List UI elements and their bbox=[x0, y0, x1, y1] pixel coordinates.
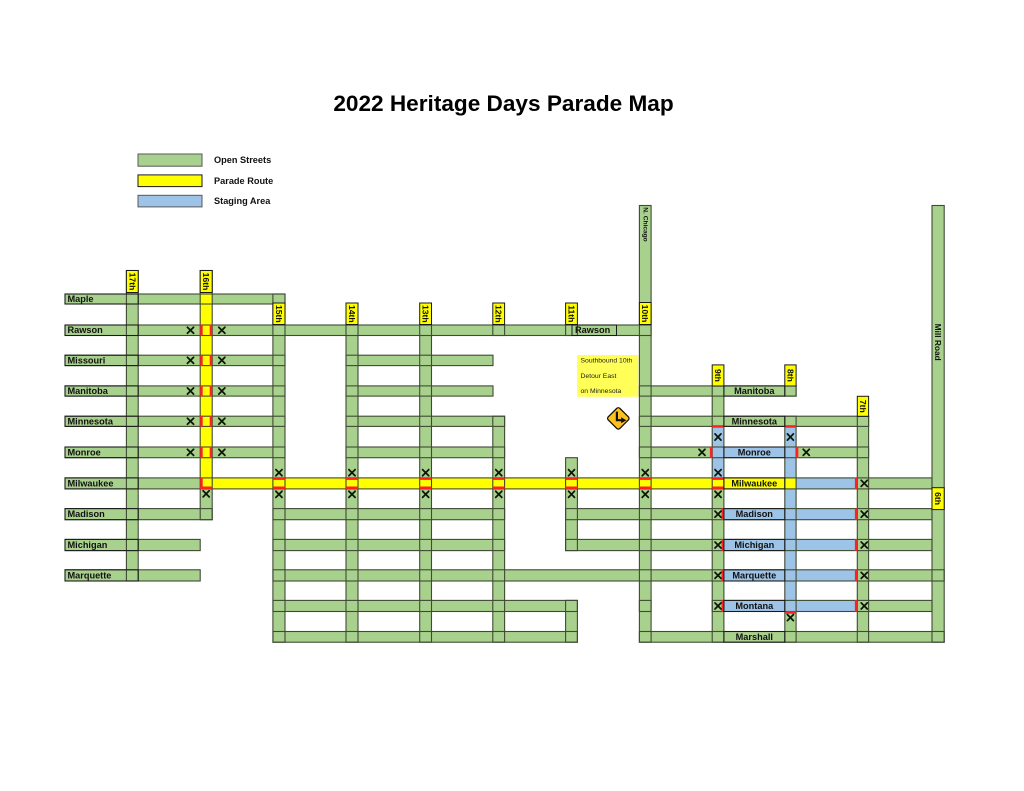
svg-text:7th: 7th bbox=[858, 400, 868, 413]
svg-text:Marquette: Marquette bbox=[68, 570, 112, 580]
svg-text:10th: 10th bbox=[640, 305, 650, 323]
svg-text:Marshall: Marshall bbox=[736, 632, 773, 642]
svg-text:Missouri: Missouri bbox=[68, 355, 106, 365]
svg-text:Staging Area: Staging Area bbox=[214, 196, 271, 206]
svg-text:Michigan: Michigan bbox=[68, 540, 108, 550]
svg-text:6th: 6th bbox=[933, 492, 943, 505]
svg-text:Detour East: Detour East bbox=[581, 373, 617, 380]
svg-text:N. Chicago: N. Chicago bbox=[642, 207, 649, 241]
svg-text:2022 Heritage Days Parade Map: 2022 Heritage Days Parade Map bbox=[333, 91, 673, 116]
svg-text:Minnesota: Minnesota bbox=[732, 416, 778, 426]
svg-text:Minnesota: Minnesota bbox=[68, 416, 114, 426]
svg-text:Michigan: Michigan bbox=[734, 540, 774, 550]
svg-text:15th: 15th bbox=[274, 305, 284, 323]
svg-text:13th: 13th bbox=[421, 305, 431, 323]
svg-text:11th: 11th bbox=[567, 305, 577, 322]
svg-text:Madison: Madison bbox=[68, 509, 106, 519]
svg-text:Southbound 10th: Southbound 10th bbox=[581, 357, 633, 364]
svg-text:Monroe: Monroe bbox=[68, 447, 101, 457]
svg-text:16th: 16th bbox=[201, 273, 211, 291]
svg-text:Milwaukee: Milwaukee bbox=[731, 478, 777, 488]
svg-text:Marquette: Marquette bbox=[732, 570, 776, 580]
svg-text:Rawson: Rawson bbox=[575, 325, 611, 335]
svg-text:Manitoba: Manitoba bbox=[734, 386, 775, 396]
svg-text:Madison: Madison bbox=[736, 509, 774, 519]
svg-text:Monroe: Monroe bbox=[738, 447, 771, 457]
svg-text:14th: 14th bbox=[347, 305, 357, 323]
svg-text:Maple: Maple bbox=[68, 294, 94, 304]
svg-text:Mill Road: Mill Road bbox=[933, 324, 943, 361]
svg-text:Rawson: Rawson bbox=[68, 325, 104, 335]
svg-text:Manitoba: Manitoba bbox=[68, 386, 109, 396]
svg-text:on Minnesota: on Minnesota bbox=[581, 388, 622, 395]
svg-text:12th: 12th bbox=[494, 305, 504, 323]
svg-text:Montana: Montana bbox=[735, 601, 774, 611]
svg-text:8th: 8th bbox=[786, 369, 796, 382]
svg-text:Parade Route: Parade Route bbox=[214, 176, 273, 186]
svg-text:Milwaukee: Milwaukee bbox=[68, 478, 114, 488]
svg-text:Open Streets: Open Streets bbox=[214, 155, 271, 165]
svg-text:9th: 9th bbox=[713, 369, 723, 382]
svg-text:17th: 17th bbox=[127, 273, 137, 291]
